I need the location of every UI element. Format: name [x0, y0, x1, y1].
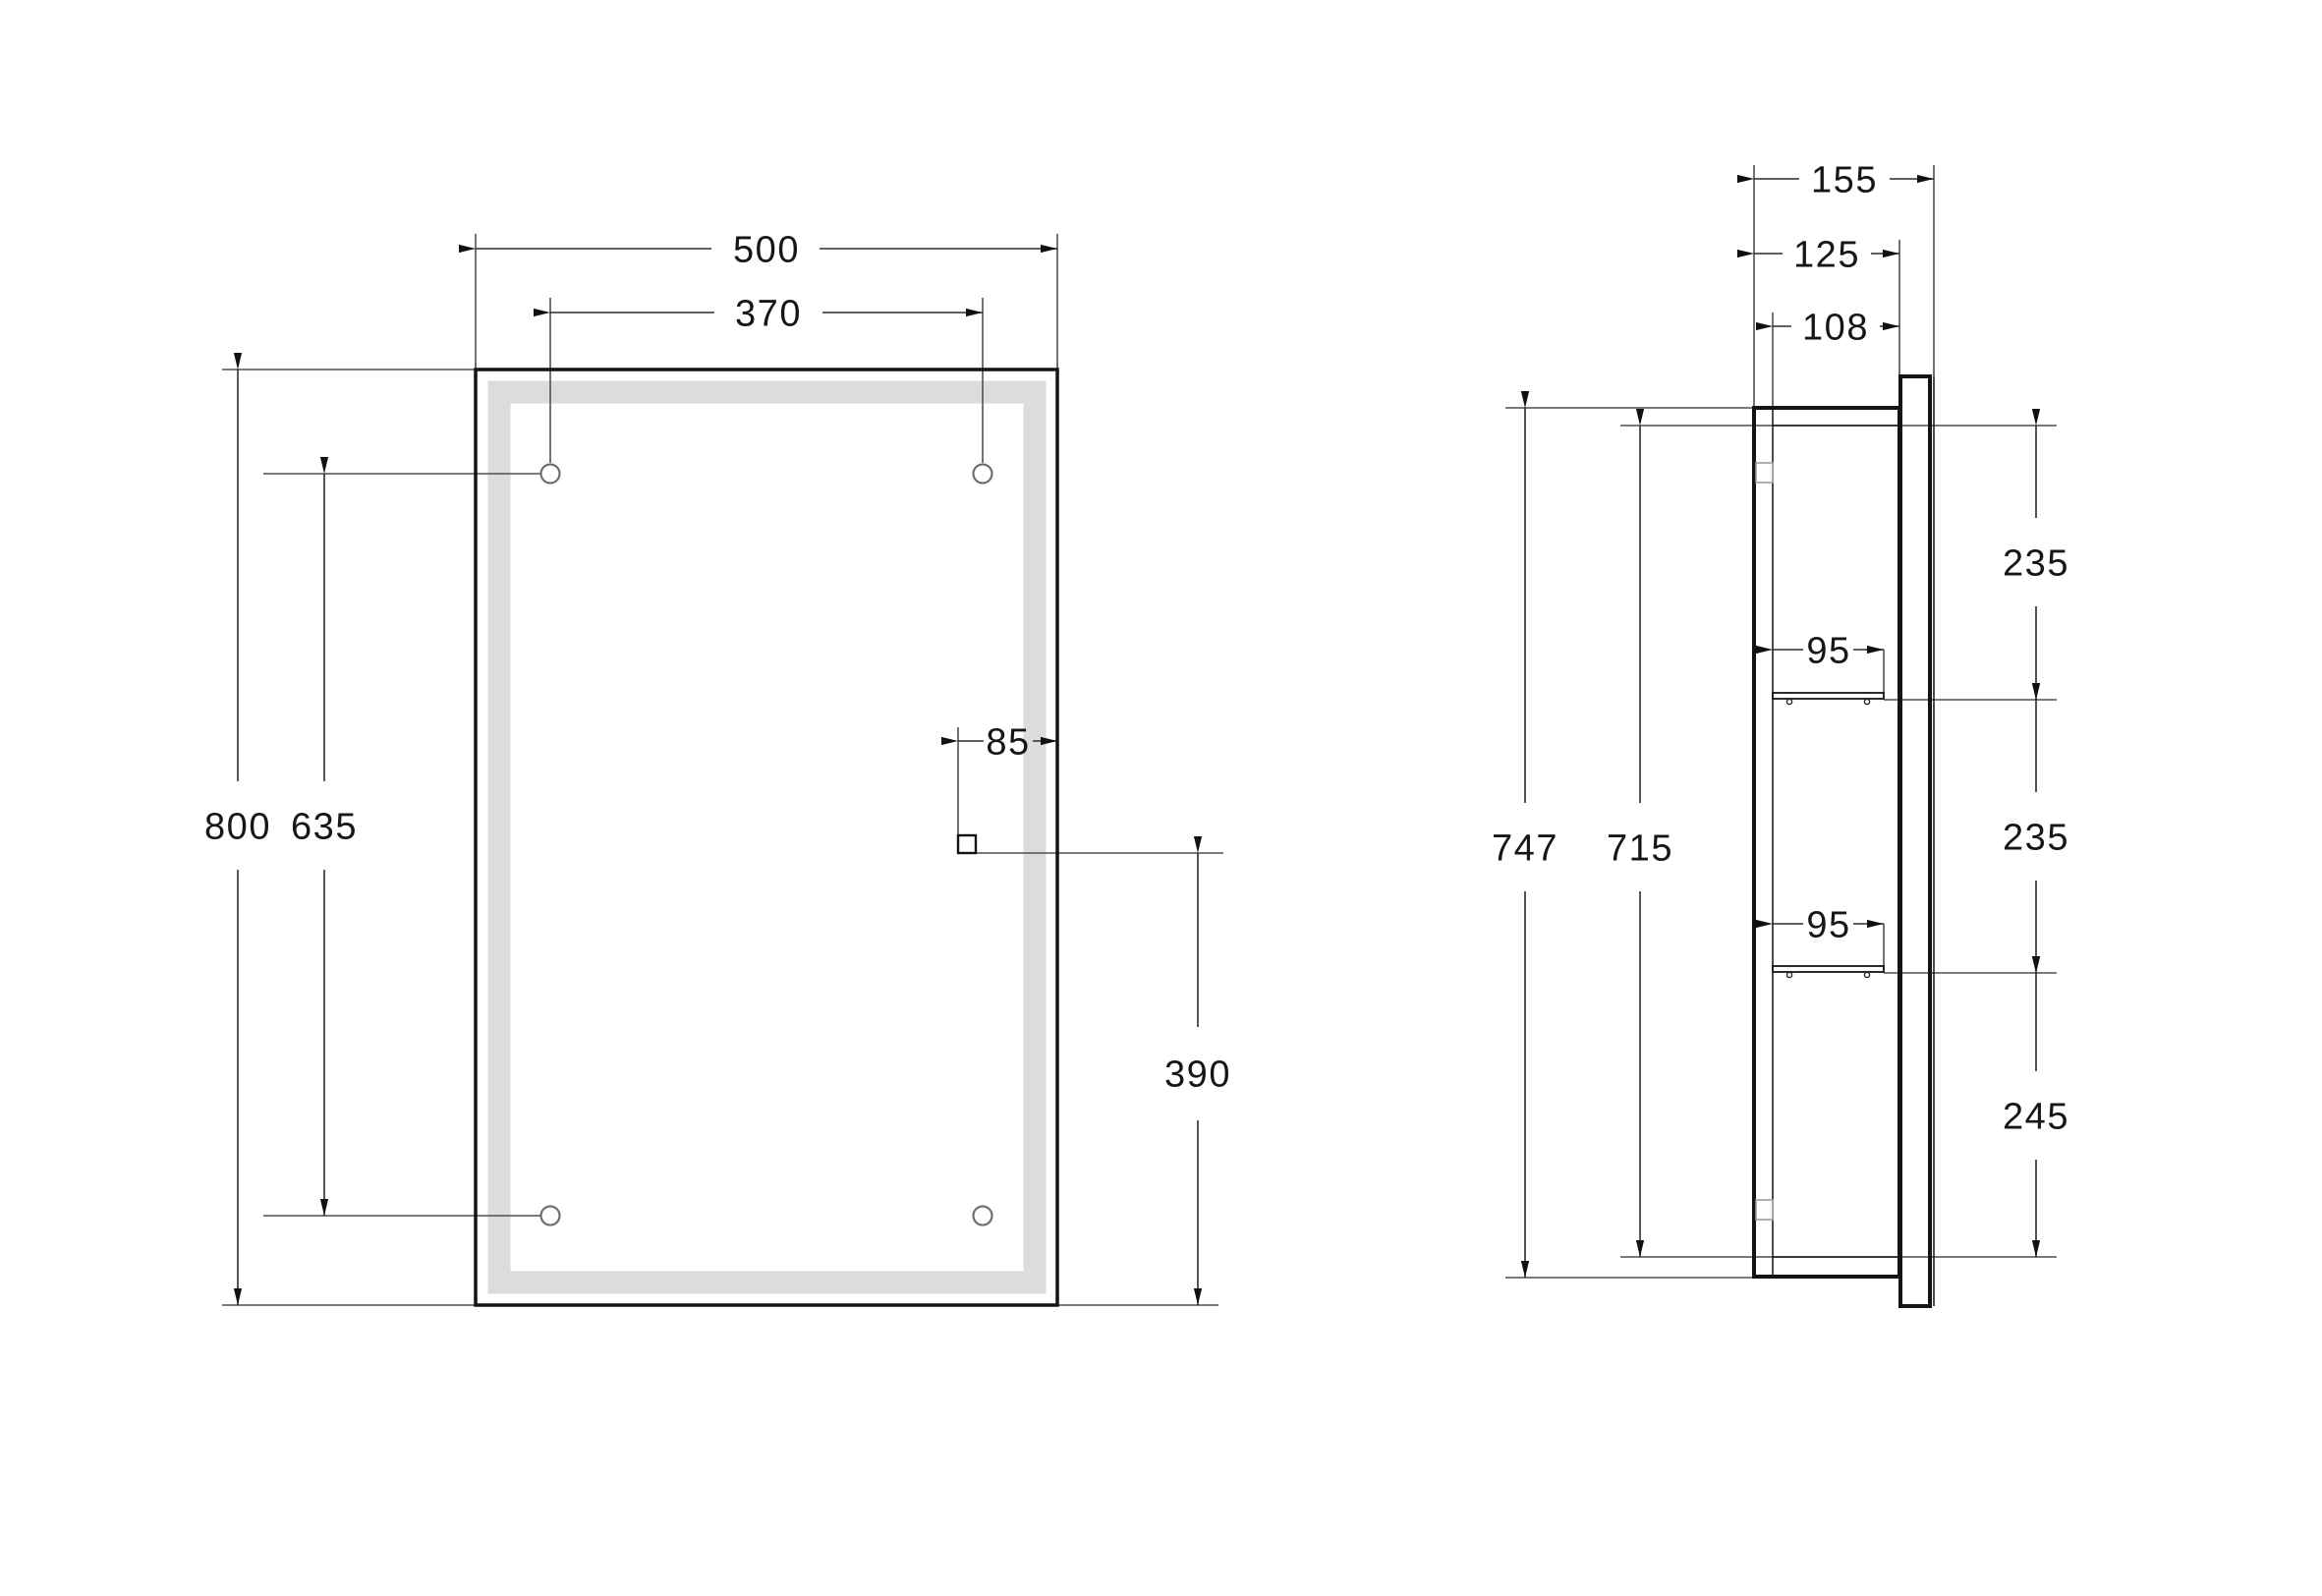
dim-front-overall-width: 500	[476, 229, 1057, 270]
cabinet-body-fill	[1754, 408, 1899, 1277]
shelf	[1773, 693, 1884, 699]
dim-side-middle-compartment: 235	[2003, 700, 2069, 973]
mounting-hole	[974, 1207, 992, 1225]
mounting-hole	[541, 1207, 560, 1225]
shelf-pin	[1786, 972, 1791, 977]
dim-front-overall-height: 800	[204, 370, 271, 1305]
mounting-hole	[541, 465, 560, 484]
touch-switch	[958, 835, 976, 853]
dim-label-switch-height: 390	[1164, 1054, 1231, 1095]
shelf-pin	[1786, 699, 1791, 704]
dim-label-middle-compartment: 235	[2003, 817, 2069, 858]
dim-side-cabinet-depth: 125	[1754, 234, 1899, 275]
dim-label-overall-depth: 155	[1811, 159, 1878, 200]
dim-side-overall-depth: 155	[1754, 159, 1934, 200]
dim-side-bottom-compartment: 245	[2003, 973, 2069, 1257]
side-view: 155 125 108 747 715	[1492, 159, 2069, 1306]
mirror-door-fill	[1899, 376, 1933, 1306]
dim-label-front-width: 500	[733, 229, 800, 270]
dim-side-inner-height: 715	[1607, 426, 1673, 1257]
front-view: 500 370 800 635 85 3	[204, 229, 1231, 1305]
dim-front-hole-spacing-h: 370	[550, 293, 983, 334]
shelf	[1773, 966, 1884, 972]
dim-side-overall-height: 747	[1492, 408, 1558, 1278]
dim-front-switch-height: 390	[1164, 853, 1231, 1305]
wall-bracket	[1756, 1200, 1773, 1220]
wall-bracket	[1756, 463, 1773, 483]
dim-label-hole-spacing-h: 370	[735, 293, 802, 334]
dim-label-front-height: 800	[204, 806, 271, 847]
mounting-hole	[974, 465, 992, 484]
dim-label-side-overall-height: 747	[1492, 827, 1558, 869]
shelf-pin	[1864, 699, 1869, 704]
dim-label-bottom-compartment: 245	[2003, 1096, 2069, 1137]
dim-label-hole-spacing-v: 635	[291, 806, 358, 847]
shelf-pin	[1864, 972, 1869, 977]
dim-label-lower-shelf-depth: 95	[1806, 904, 1850, 945]
technical-drawing-page: 500 370 800 635 85 3	[0, 0, 2322, 1596]
dim-label-inner-depth: 108	[1802, 307, 1869, 348]
dim-side-top-compartment: 235	[2003, 426, 2069, 700]
dim-front-hole-spacing-v: 635	[291, 474, 358, 1216]
dim-label-switch-offset: 85	[986, 721, 1030, 763]
dim-label-cabinet-depth: 125	[1793, 234, 1860, 275]
dim-label-upper-shelf-depth: 95	[1806, 630, 1850, 671]
mirror-cabinet-drawing: 500 370 800 635 85 3	[0, 0, 2322, 1596]
dim-side-inner-depth: 108	[1773, 307, 1899, 348]
dim-label-top-compartment: 235	[2003, 542, 2069, 584]
dim-label-side-inner-height: 715	[1607, 827, 1673, 869]
